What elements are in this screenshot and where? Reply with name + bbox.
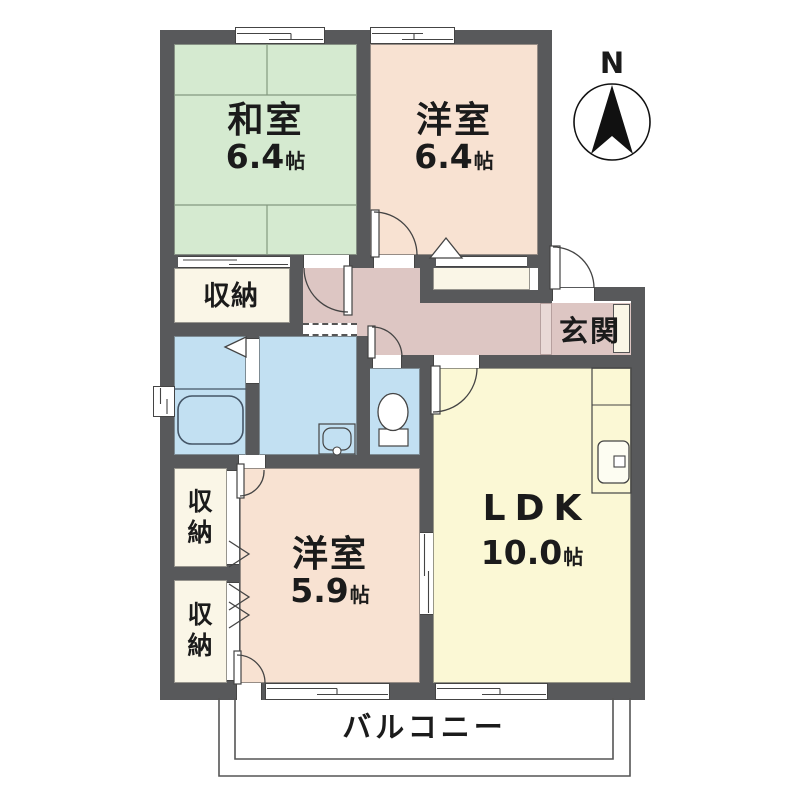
wall [357,30,370,268]
wall [420,355,433,683]
closet-name: 収納 [185,599,215,662]
label-closet-upper: 収納 [176,283,286,311]
window-washitsu [235,27,325,44]
entrance-door-opening [552,288,595,301]
room-name: 洋室 [416,102,492,140]
window-balcony-youshitsu [265,683,390,700]
wall [480,355,631,368]
label-closet-mid: 収納 [185,486,215,549]
room-name: LDK [474,490,591,528]
room-name: 洋室 [292,536,368,574]
genkan-name: 玄関 [559,316,621,346]
label-ldk: LDK 10.0帖 [433,490,631,570]
room-size: 5.9帖 [290,574,369,609]
folding-door-closet-lower [227,582,239,681]
size-unit: 帖 [563,547,583,568]
balcony-name: バルコニー [342,712,506,742]
label-genkan: 玄関 [548,316,632,346]
closet-opening-oshiire [436,256,527,267]
size-unit: 帖 [474,151,494,172]
folding-door-closet-mid [227,470,239,565]
door-opening-toilet [372,355,402,368]
sliding-door-ldk-youshitsu [420,532,433,615]
window-balcony-ldk [435,683,548,700]
label-youshitsu-upper: 洋室 6.4帖 [370,102,538,174]
wall [160,323,303,336]
room-size: 6.4帖 [414,140,493,175]
washroom [259,336,357,455]
balcony-door-youshitsu-lower [236,683,262,700]
label-north: N [592,48,632,78]
label-closet-lower: 収納 [185,599,215,662]
sliding-door-closet-upper [178,256,290,268]
wall [160,455,433,468]
closet-name: 収納 [185,486,215,549]
wall [357,336,370,455]
size-value: 10.0 [481,536,562,571]
toilet-room [368,368,420,455]
window-bathroom [153,386,175,417]
door-opening-ldk [433,355,480,368]
wall [420,290,552,303]
room-size: 10.0帖 [481,536,583,571]
label-youshitsu-lower: 洋室 5.9帖 [240,536,420,608]
hallway [303,268,357,323]
north-arrow-icon [591,85,633,154]
size-value: 6.4 [414,140,472,175]
door-opening-youshitsu-upper [373,255,415,268]
room-size: 6.4帖 [226,140,305,175]
size-unit: 帖 [350,585,370,606]
closet-name: 収納 [203,283,259,311]
room-name: 和室 [227,102,303,140]
bath-folding-door [246,338,259,384]
door-opening-youshitsu-lower [238,455,266,468]
wall [631,287,645,700]
door-opening-washitsu [303,255,350,268]
label-washitsu: 和室 6.4帖 [174,102,357,174]
window-youshitsu-upper [370,27,455,44]
door-arc-entrance [553,247,594,288]
wall [160,683,645,700]
wall [160,30,174,700]
size-value: 5.9 [290,574,348,609]
open-passage-washroom [303,323,357,336]
size-value: 6.4 [226,140,284,175]
floor-plan: 和室 6.4帖 洋室 6.4帖 収納 玄関 LDK 10.0帖 洋室 5.9帖 … [0,0,800,800]
size-unit: 帖 [285,151,305,172]
compass-circle [574,84,650,160]
bathroom [174,336,246,455]
north-letter: N [600,48,624,78]
wall [160,30,552,44]
compass [574,84,650,160]
label-balcony: バルコニー [236,712,613,742]
